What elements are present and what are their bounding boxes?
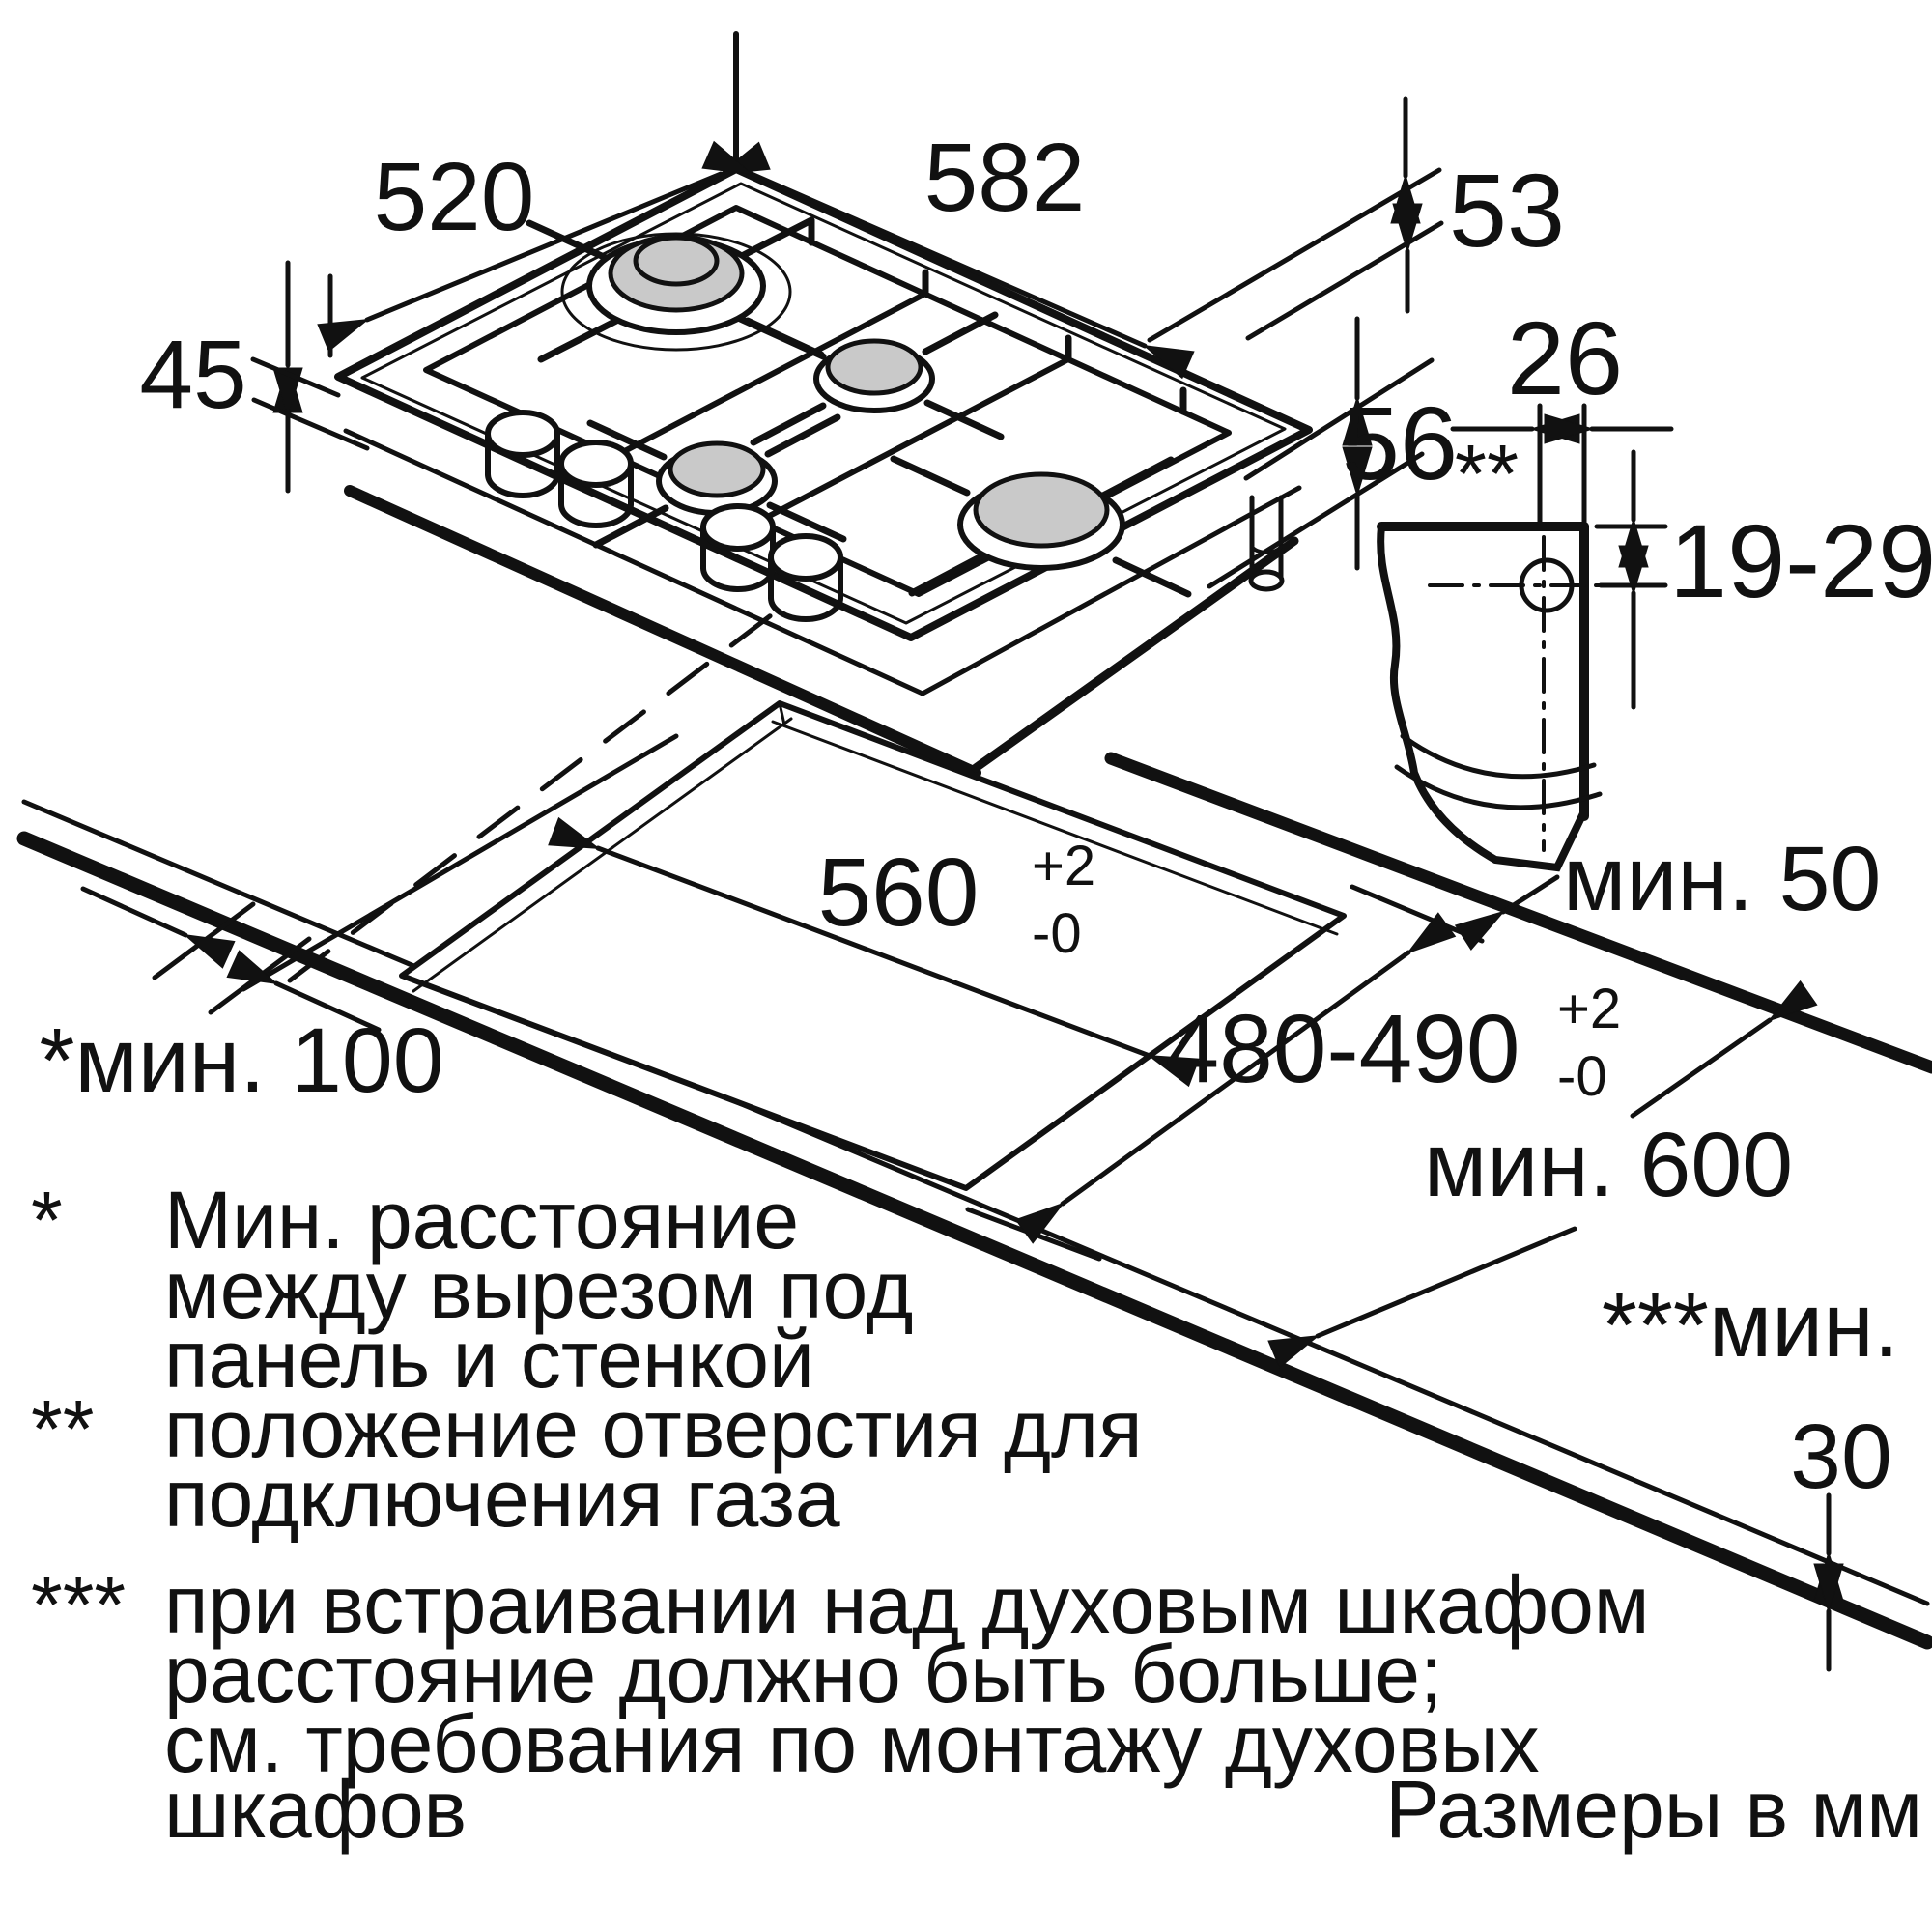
label-480-tol-minus: -0 xyxy=(1557,1045,1607,1108)
burner-small-middle-back xyxy=(816,341,932,411)
dim-45-ext-b xyxy=(254,400,367,448)
footnote-3-line-4: шкафов xyxy=(164,1764,467,1855)
installation-diagram: 520 582 45 53 26 56 ** 19-29 мин. 50 560… xyxy=(0,0,1932,1932)
dim-45-ext-a xyxy=(253,359,338,395)
label-min-50: мин. 50 xyxy=(1563,828,1881,930)
dim-600-leader-down xyxy=(1318,1229,1575,1336)
label-480-tol-plus: +2 xyxy=(1557,978,1621,1040)
footnote-marker-1: * xyxy=(31,1175,63,1265)
footnote-marker-2: ** xyxy=(31,1383,94,1474)
bracket-break-line-1 xyxy=(1403,736,1594,777)
label-560-tol-minus: -0 xyxy=(1032,902,1082,965)
label-19-29: 19-29 xyxy=(1669,502,1932,619)
dim-600-leader-up xyxy=(1633,1020,1770,1116)
label-gas-marker: ** xyxy=(1455,429,1519,521)
label-582: 582 xyxy=(924,124,1086,232)
units-note: Размеры в мм xyxy=(1385,1764,1922,1855)
label-560: 560 xyxy=(818,838,980,947)
burner-small-middle-front xyxy=(659,443,775,513)
label-480-490: 480-490 xyxy=(1166,995,1520,1103)
label-480-group: 480-490 +2 -0 xyxy=(1166,978,1622,1108)
dim-53-ext-top xyxy=(1150,170,1439,340)
footnote-marker-3: *** xyxy=(31,1559,126,1650)
dim-53-ext-bottom xyxy=(1248,223,1441,338)
label-min-30-prefix: ***мин. xyxy=(1602,1274,1899,1377)
diagram-canvas: 520 582 45 53 26 56 ** 19-29 мин. 50 560… xyxy=(0,0,1932,1932)
hob-illustration xyxy=(338,169,1309,773)
label-min-100: *мин. 100 xyxy=(39,1009,443,1112)
label-560-tol-plus: +2 xyxy=(1032,835,1095,897)
burner-large-back-left xyxy=(562,234,790,350)
label-26: 26 xyxy=(1507,299,1623,416)
dim-50-leader xyxy=(1503,877,1557,912)
label-56: 56 xyxy=(1342,384,1458,501)
label-520: 520 xyxy=(374,143,535,251)
label-45: 45 xyxy=(139,321,246,429)
label-53: 53 xyxy=(1449,152,1565,269)
footnote-2-line-2: подключения газа xyxy=(164,1453,840,1544)
label-min-30-value: 30 xyxy=(1790,1406,1892,1508)
label-min-600: мин. 600 xyxy=(1424,1114,1793,1216)
